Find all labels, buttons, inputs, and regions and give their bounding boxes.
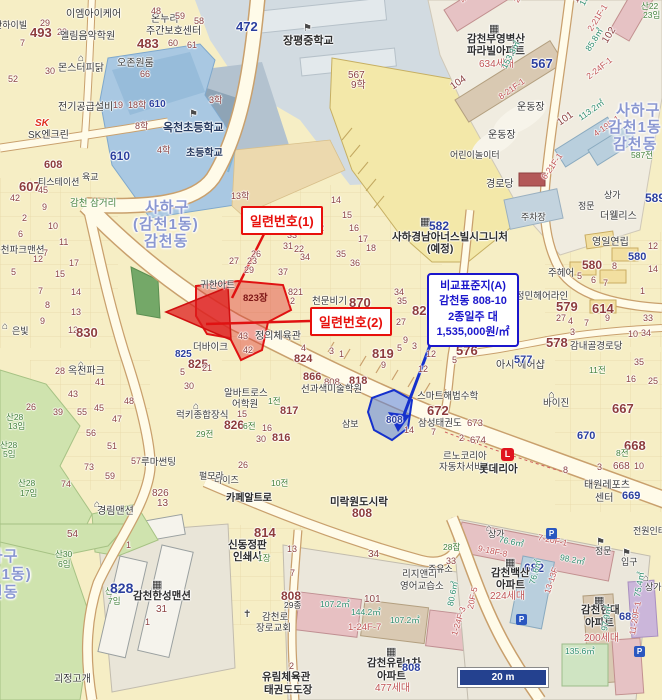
map-label: 경림맨션 (97, 507, 134, 517)
map-label: 18학 (128, 101, 146, 110)
map-label: 루마썬팅 (141, 458, 176, 468)
map-label: 667 (612, 402, 634, 415)
map-label: 33 (643, 314, 653, 323)
map-label: 587전 (631, 151, 653, 160)
map-label: 567 (531, 57, 553, 70)
map-label: 34 (641, 329, 651, 338)
map-label: 이엠아이케어 (66, 10, 121, 20)
map-label: 670 (577, 431, 595, 442)
map-label: 산하이빌 (0, 21, 27, 30)
map-label: 천문비기 (312, 297, 347, 307)
map-label: 808 (386, 416, 403, 426)
map-label: 25 (648, 377, 658, 386)
map-label: 47 (112, 415, 122, 424)
map-labels-layer: 이엠아이케어산하이빌49329287온누리주간보호센터4834859586061… (0, 0, 662, 700)
map-label: 감내골경로당 (570, 342, 622, 352)
parking-icon: P (516, 614, 527, 625)
map-label: 사하경남아너스빌시그니처 (392, 232, 508, 243)
map-label: 7 (431, 428, 436, 437)
map-label: 34 (300, 253, 310, 262)
comparison-title: 비교표준지(A) (432, 279, 514, 294)
map-label: 13-13F (543, 566, 559, 594)
map-label: 73 (84, 463, 94, 472)
map-label: 2 (290, 297, 295, 306)
map-label: 27 (229, 257, 239, 266)
map-label: 11전 (589, 366, 606, 375)
map-label: 엘림음악학원 (60, 32, 115, 42)
map-label: 9학 (351, 81, 366, 91)
map-label: 9 (40, 317, 45, 326)
map-label: 6 (591, 276, 596, 285)
map-label: 정문 (595, 547, 612, 556)
map-label: 괴정고개 (54, 675, 91, 685)
map-label: 27 (556, 314, 566, 323)
map-label: 102 (601, 26, 618, 45)
map-label: 7 (584, 319, 589, 328)
map-label: 153.3㎡ (578, 0, 599, 7)
map-label: 감천 삼거리 (70, 199, 116, 209)
callout-serial-2-label: 일련번호(2) (319, 315, 383, 330)
map-label: 75.4㎡ (633, 571, 646, 597)
map-label: 29 (244, 266, 254, 275)
map-label: 유림체육관 (262, 672, 310, 683)
map-label: 어린이놀이터 (450, 151, 500, 160)
map-label: 5임 (3, 450, 16, 459)
map-label: 144.2㎡ (351, 608, 381, 617)
map-label: 상가 (645, 583, 662, 592)
map-label: 28 (55, 367, 65, 376)
map-label: 3 (570, 328, 575, 337)
map-label: 31 (283, 242, 293, 251)
map-label: 866 (303, 372, 321, 383)
map-label: 59 (175, 12, 185, 21)
map-label: 610 (149, 100, 166, 110)
map-label: 장평중학교 (283, 36, 334, 47)
map-label: 104 (449, 74, 468, 92)
map-label: 58 (194, 17, 204, 26)
map-label: 신동정판 (228, 540, 267, 551)
map-label: 673 (467, 419, 483, 429)
map-label: ✝ (243, 610, 251, 620)
map-label: 55 (77, 408, 87, 417)
map-label: (감천1동) (133, 217, 199, 232)
callout-serial-number-2[interactable]: 일련번호(2) (310, 307, 392, 336)
map-label: 6임 (58, 560, 71, 569)
map-label: 감천한성맨션 (133, 591, 191, 602)
map-label: 15 (55, 270, 65, 279)
map-label: 센터 (595, 494, 613, 504)
map-label: 200세대 (584, 634, 619, 644)
map-label: 56 (86, 429, 96, 438)
map-label: 장로교회 (256, 624, 291, 634)
scale-bar: 20 m (458, 668, 548, 687)
map-label: 10 (48, 222, 58, 231)
map-label: 98.2㎡ (559, 553, 585, 567)
map-label: 귀한아트 (200, 281, 235, 291)
map-label: 30 (45, 67, 55, 76)
map-label: 35 (397, 297, 407, 306)
map-label: 1 (339, 350, 344, 359)
map-label: 828 (110, 581, 133, 595)
map-label: 37 (278, 268, 288, 277)
map-label: 롯데리아 (479, 464, 518, 475)
map-label: 사하구 (0, 549, 18, 564)
map-label: 10 (628, 330, 638, 339)
map-label: 10 (634, 462, 644, 471)
map-label: 삼보 (342, 420, 359, 429)
map-label: 6 (18, 230, 23, 239)
map-label: 41 (95, 378, 105, 387)
map-label: ⚑ (189, 110, 198, 120)
map-label: 사하구 (616, 103, 660, 118)
map-label: 808 (402, 663, 420, 674)
map-label: 48 (124, 397, 134, 406)
map-label: 1전 (268, 397, 281, 406)
map-label: 80.6㎡ (446, 581, 460, 607)
map-label: 럭키종합장식 (176, 411, 228, 421)
parking-icon: P (634, 646, 645, 657)
map-label: 감천로 (262, 613, 288, 623)
map-label: 감천동 (144, 234, 188, 249)
map-label: 14 (71, 288, 81, 297)
map-label: 13학 (231, 192, 249, 201)
map-label: 19 (113, 101, 123, 110)
map-label: 1 (126, 541, 131, 550)
comparison-zoning: 2종일주 대 (432, 310, 514, 325)
map-label: 12 (33, 255, 43, 264)
map-label: 35 (336, 250, 346, 259)
map-label: 3 (412, 342, 417, 351)
map-label: 2 (289, 662, 294, 671)
map-label: 13 (157, 499, 168, 509)
map-label: 감천백산 (491, 568, 530, 579)
map-label: 808 (352, 507, 372, 519)
map-label: 580 (582, 259, 602, 271)
map-label: 13 (287, 545, 297, 554)
map-label: 초등학교 (186, 149, 223, 159)
map-label: 5 (397, 344, 402, 353)
map-label: 1 (145, 618, 150, 627)
map-label: 12 (418, 365, 428, 374)
map-label: 27 (396, 318, 406, 327)
map-label: 카페알트로 (226, 494, 272, 504)
map-label: SK (35, 119, 49, 129)
map-label: 59 (105, 472, 115, 481)
map-label: 알바트로스 (224, 389, 268, 399)
map-label: 830 (76, 326, 98, 339)
map-label: 823장 (243, 294, 268, 304)
map-label: 4-19F-1 (458, 0, 479, 4)
map-label: 819 (372, 347, 394, 360)
map-label: 74 (61, 480, 71, 489)
map-label: 10전 (271, 479, 288, 488)
map-label: 13 (71, 308, 81, 317)
map-label: (예정) (427, 244, 453, 255)
map-label: 입구 (621, 558, 638, 567)
map-label: 668 (613, 462, 630, 472)
map-label: 더웰리스 (600, 212, 637, 222)
map-label: 20F-5 (466, 586, 479, 610)
map-label: 15 (342, 211, 352, 220)
map-label: 2-24F-1 (585, 56, 614, 81)
map-label: 8-21F-1 (497, 77, 526, 101)
map-label: 51 (107, 442, 117, 451)
map-label: 6전 (243, 422, 256, 431)
map-label: 선과색미술학원 (301, 385, 362, 395)
map-label: 사하구 (145, 200, 189, 215)
map-label: 30 (256, 435, 266, 444)
map-label: 3 (597, 463, 602, 472)
map-label: 107.2㎡ (320, 600, 350, 609)
map-label: 6-21F-1 (540, 152, 564, 181)
map-label: 14 (331, 196, 341, 205)
map-label: 2 (459, 434, 464, 443)
map-label: 26 (238, 461, 248, 470)
map-label: 육교 (82, 173, 99, 182)
map-label: 1-24F-7 (348, 623, 381, 633)
map-label: 34 (368, 550, 379, 560)
map-label: 39 (53, 408, 63, 417)
map-label: 48 (151, 7, 161, 16)
map-label: 4 (568, 317, 573, 326)
map-label: 감천1동 (608, 120, 662, 135)
map-label: 1-24F-3 (450, 606, 467, 637)
map-label: 577 (514, 355, 532, 366)
map-label: 9-18F-8 (477, 544, 508, 559)
map-label: 16 (349, 224, 359, 233)
map-label: 42 (10, 194, 20, 203)
map-label: 35 (634, 358, 644, 367)
map-label: 579 (556, 300, 578, 313)
map-label: 더바이크 (193, 343, 228, 353)
map-label: 1장 (258, 554, 271, 563)
map-label: 8 (612, 262, 617, 271)
map-label: 30 (184, 382, 194, 391)
scale-bar-label: 20 m (492, 672, 515, 683)
map-label: 7 (603, 279, 608, 288)
map-label: 578 (546, 336, 568, 349)
map-label: 29 (40, 19, 50, 28)
callout-serial-number-1[interactable]: 일련번호(1) (241, 206, 323, 235)
map-label: 아파트 (496, 580, 525, 591)
map-label: 36 (350, 259, 360, 268)
map-label: 3학 (209, 96, 222, 105)
comparison-address: 감천동 808-10 (432, 294, 514, 309)
map-label: 은빛 (12, 327, 29, 336)
map-label: 몬스터피닭 (58, 64, 104, 74)
map-label: 61 (187, 41, 197, 50)
map-label: 42 (243, 346, 253, 355)
map-label: 3 (329, 347, 334, 356)
map-label: 28잡 (443, 543, 460, 552)
map-label: 감천동 (0, 585, 18, 600)
map-label: 옥천초등학교 (163, 123, 224, 134)
map-label: 13임 (8, 422, 25, 431)
map-label: 23임 (643, 11, 660, 20)
map-label: 옥천파크 (68, 367, 105, 377)
map-label: 60 (168, 39, 178, 48)
map-label: 16 (262, 424, 272, 433)
map-label: 9 (381, 361, 386, 370)
map-label: 영일연립 (592, 238, 629, 248)
map-label: 614 (592, 302, 614, 315)
callout-comparison-parcel[interactable]: 비교표준지(A) 감천동 808-10 2종일주 대 1,535,000원/㎡ (427, 273, 519, 347)
map-label: 감천현대 (581, 605, 620, 616)
map-label: 54 (67, 530, 78, 540)
map-label: 전기공급설비 (58, 103, 113, 113)
map-label: 9 (42, 203, 47, 212)
map-label: 8 (45, 301, 50, 310)
map-label: 76.6㎡ (498, 535, 524, 549)
map-label: 5 (577, 272, 582, 281)
map-label: 52 (8, 75, 18, 84)
map-label: 영어교습소 (400, 582, 444, 592)
map-label: 824 (294, 354, 312, 365)
map-label: 운동장 (517, 103, 545, 113)
map-label: 운동장 (488, 131, 516, 141)
map-label: 12 (648, 242, 658, 251)
map-label: 11 (59, 238, 68, 247)
map-label: 4 (301, 344, 306, 353)
map-label: 608 (44, 160, 62, 171)
map-label: 산30 (55, 550, 72, 559)
map-label: 589 (645, 192, 662, 204)
map-label: 정의체육관 (255, 332, 301, 342)
map-label: 224세대 (490, 592, 525, 602)
map-label: 5 (11, 268, 16, 277)
map-label: 7 (43, 249, 48, 258)
map-label: 18 (366, 244, 376, 253)
map-label: 8전 (616, 449, 629, 458)
map-label: 672 (427, 404, 449, 417)
map-label: 2-25F-1 (512, 0, 533, 4)
map-label: 43 (238, 332, 248, 341)
map-label: 정문 (578, 202, 595, 211)
map-label: 101 (364, 595, 381, 605)
map-label: 5 (452, 356, 457, 365)
map-label: 주유소 (428, 565, 453, 574)
map-label: 477세대 (375, 684, 410, 694)
map-label: 8학 (135, 122, 148, 131)
map-label: 669 (622, 491, 640, 502)
map-label: 26 (26, 403, 36, 412)
map-label: 산28 (18, 479, 35, 488)
map-label: 45 (38, 186, 48, 195)
map-label: 주차장 (521, 213, 546, 222)
map-label: 경로당 (486, 180, 514, 190)
map-label: 7 (38, 287, 43, 296)
map-label: 43 (68, 390, 78, 399)
map-label: 7임 (108, 597, 121, 606)
callout-serial-1-label: 일련번호(1) (250, 214, 314, 229)
map-label: 삼성태권도 (418, 419, 462, 429)
map-label: 주헤어 (548, 269, 574, 279)
map-label: 817 (280, 406, 298, 417)
parking-icon: P (546, 528, 557, 539)
map-label: 472 (236, 20, 258, 33)
map-label: 1 (640, 287, 645, 296)
map-label: (감천1동) (0, 567, 32, 582)
map-label: ⌂ (2, 322, 8, 332)
map-label: 57 (131, 457, 141, 466)
map-label: 814 (254, 526, 276, 539)
map-label: 9 (605, 314, 610, 323)
comparison-price: 1,535,000원/㎡ (432, 325, 514, 340)
map-label: 11-20F-1 (628, 601, 642, 636)
map-label: 29전 (196, 430, 213, 439)
map-label: 펄모라 (199, 472, 224, 481)
map-label: 전원인테리어 (633, 527, 662, 536)
map-label: 12 (426, 350, 436, 359)
map-label: 17 (69, 259, 79, 268)
map-label: 107.2㎡ (390, 616, 420, 625)
map-label: 오존원룸 (117, 59, 154, 69)
map-label: 31 (156, 605, 167, 615)
map-label: 34 (394, 288, 404, 297)
map-label: 29종 (284, 601, 301, 610)
lotteria-logo-icon: L (501, 448, 514, 461)
map-label: 113.2㎡ (577, 98, 606, 122)
map-label: 5 (180, 368, 185, 377)
map-label: 4학 (157, 146, 170, 155)
map-label: 17임 (20, 489, 37, 498)
map-label: 태권도도장 (264, 685, 312, 696)
map-label: 674 (470, 436, 486, 446)
map-label: 45 (94, 404, 104, 413)
map-label: 483 (137, 37, 159, 50)
map-label: 66 (140, 70, 150, 79)
map-label: 9 (403, 336, 408, 345)
map-label: 상가 (604, 191, 621, 200)
map-label: ⚑ (303, 24, 312, 34)
map-canvas[interactable]: 이엠아이케어산하이빌49329287온누리주간보호센터4834859586061… (0, 0, 662, 700)
map-label: 2 (22, 214, 27, 223)
map-label: 14 (648, 265, 658, 274)
map-label: SK엔크린 (28, 131, 69, 141)
map-label: 16 (626, 375, 636, 384)
map-label: 135.6㎡ (565, 647, 595, 656)
map-label: 스마트해법수학 (417, 392, 478, 402)
map-label: 8 (563, 466, 568, 475)
map-label: 610 (110, 150, 130, 162)
map-label: 14 (404, 426, 414, 435)
map-label: 7 (290, 569, 295, 578)
map-label: 21 (202, 364, 212, 373)
map-label: 르노코리아 (443, 452, 487, 462)
map-label: 816 (272, 433, 290, 444)
map-label: 7 (20, 39, 25, 48)
map-label: 바이진 (543, 399, 569, 409)
map-label: 101 (556, 110, 575, 128)
map-label: 580 (628, 252, 646, 263)
